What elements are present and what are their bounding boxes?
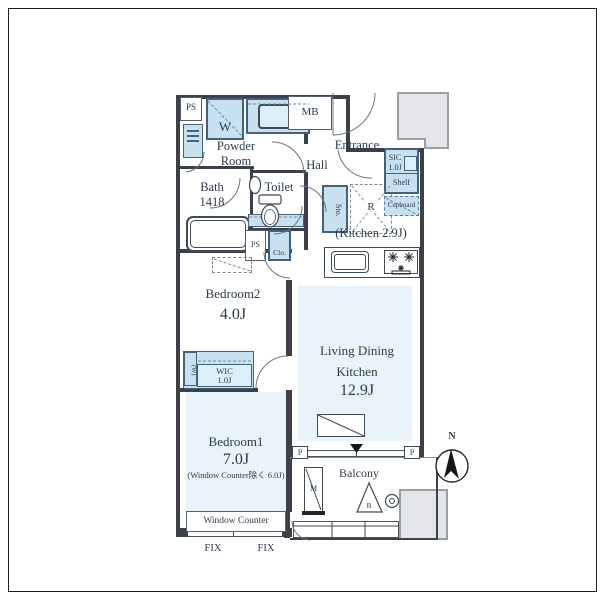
refrigerator-label: R [350, 201, 392, 214]
wall-powder-right-b [304, 172, 308, 250]
bathtub-inner [190, 220, 246, 248]
kitchen-sink-inner [334, 254, 366, 270]
ps-top-label: PS [180, 102, 202, 113]
floor-plan: PS W MB Powder Room Bath 1418 Toilet Hal… [0, 0, 606, 601]
sic-shelf-divider [385, 173, 418, 174]
wall-right [420, 148, 424, 457]
shelf-label: Shelf [384, 178, 419, 188]
window-counter-label: Window Counter [186, 516, 286, 528]
hall-label: Hall [296, 158, 338, 173]
pillar-left-label: P [292, 448, 308, 458]
storage-label: Sto. [327, 193, 343, 227]
common-area-block-top [397, 92, 449, 140]
balcony-meter-label: M [304, 484, 323, 494]
powder-room-label: Powder Room [196, 139, 276, 170]
fix-left-label: FIX [198, 543, 228, 556]
bedroom1-label: Bedroom1 [186, 434, 286, 450]
north-label: N [444, 431, 460, 443]
ps-mid-label: PS [245, 240, 266, 250]
meter-box-label: MB [288, 106, 332, 119]
common-area-block-top-tab [424, 138, 449, 149]
pillar-right-label: P [404, 448, 420, 458]
wic-size-label: 1.0J [197, 375, 252, 385]
balcony-label: Balcony [328, 466, 390, 481]
kitchen-label: (Kitchen 2.9J) [316, 226, 426, 241]
entrance-label: Entrance [325, 138, 389, 153]
water-heater-lines [187, 130, 199, 132]
sic-label: SIC 1.0J [384, 153, 406, 173]
bedroom2-label: Bedroom2 [183, 286, 283, 302]
toilet-counter [248, 214, 304, 227]
balcony-meter-base [302, 511, 325, 515]
ldk-size-label: 12.9J [300, 381, 414, 401]
ldk-counter-box [317, 414, 365, 437]
wall-center-a [286, 280, 292, 356]
washer-label: W [206, 119, 244, 135]
balcony-railing [293, 521, 399, 538]
wic-w-label: (W) [184, 357, 197, 383]
bath-label: Bath 1418 [186, 180, 238, 211]
closet-label: Clo. [268, 248, 291, 257]
kitchen-stove [384, 250, 418, 274]
hatch-label: B [358, 502, 380, 511]
bedroom2-storage-dashed [212, 257, 252, 273]
bedroom1-note-label: (Window Counter除く 6.0J) [184, 470, 288, 480]
toilet-label: Toilet [256, 180, 302, 195]
bedroom2-size-label: 4.0J [183, 305, 283, 325]
wall-left [176, 95, 180, 537]
ldk-window-tick [356, 450, 357, 457]
ldk-label-line1: Living Dining [300, 343, 414, 359]
fix-right-label: FIX [251, 543, 281, 556]
ldk-label-line2: Kitchen [300, 364, 414, 380]
bedroom1-size-label: 7.0J [186, 450, 286, 470]
